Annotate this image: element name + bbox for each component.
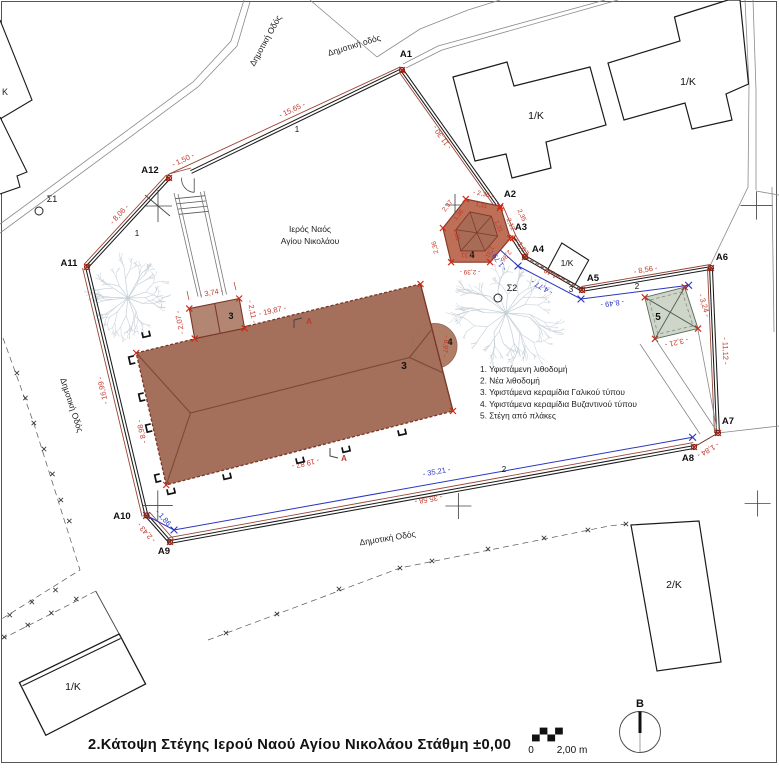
- svg-text:A6: A6: [716, 252, 728, 263]
- svg-text:Ιερός Ναός: Ιερός Ναός: [289, 224, 331, 234]
- svg-text:2: 2: [635, 282, 640, 291]
- svg-text:A10: A10: [113, 511, 130, 522]
- svg-text:5: 5: [655, 312, 661, 323]
- svg-text:A8: A8: [682, 453, 694, 464]
- svg-text:A: A: [341, 454, 347, 463]
- svg-text:1/Κ: 1/Κ: [65, 681, 81, 693]
- svg-text:A9: A9: [158, 546, 170, 557]
- svg-text:5. Στέγη από πλάκες: 5. Στέγη από πλάκες: [480, 410, 556, 420]
- svg-text:1/Κ: 1/Κ: [561, 258, 574, 268]
- svg-text:Αγίου Νικολάου: Αγίου Νικολάου: [281, 236, 340, 246]
- svg-text:A7: A7: [722, 416, 734, 427]
- svg-text:- 2,39 -: - 2,39 -: [460, 268, 481, 275]
- svg-text:A1: A1: [400, 49, 413, 60]
- svg-text:A5: A5: [587, 273, 600, 284]
- svg-text:3: 3: [228, 311, 233, 321]
- svg-text:3: 3: [569, 285, 574, 294]
- svg-text:2. Νέα λιθοδομή: 2. Νέα λιθοδομή: [480, 376, 540, 386]
- svg-text:1: 1: [295, 125, 300, 134]
- svg-text:A2: A2: [504, 189, 516, 200]
- svg-text:1/Κ: 1/Κ: [528, 110, 544, 122]
- svg-text:- 11,12 -: - 11,12 -: [721, 337, 731, 365]
- svg-text:Σ1: Σ1: [47, 194, 58, 204]
- svg-text:2,00 m: 2,00 m: [557, 745, 588, 756]
- svg-text:1,31: 1,31: [460, 251, 473, 258]
- svg-text:A4: A4: [532, 244, 545, 255]
- svg-text:A3: A3: [515, 222, 527, 233]
- svg-text:3: 3: [401, 361, 407, 372]
- svg-text:A11: A11: [61, 258, 79, 269]
- svg-text:0: 0: [528, 745, 534, 756]
- svg-text:3. Υφιστάμενα κεραμίδια Γαλικο: 3. Υφιστάμενα κεραμίδια Γαλικού τύπου: [480, 387, 625, 397]
- svg-text:1/Κ: 1/Κ: [680, 76, 696, 88]
- svg-text:2/Κ: 2/Κ: [666, 579, 682, 591]
- svg-text:4. Υφιστάμενα κεραμίδια Βυζαντ: 4. Υφιστάμενα κεραμίδια Βυζαντινού τύπου: [480, 399, 637, 409]
- svg-text:2.Κάτοψη Στέγης Ιερού Ναού Αγί: 2.Κάτοψη Στέγης Ιερού Ναού Αγίου Νικολάο…: [88, 737, 511, 753]
- svg-text:A12: A12: [141, 165, 158, 176]
- svg-text:Σ2: Σ2: [507, 283, 518, 293]
- svg-text:2: 2: [502, 465, 507, 474]
- svg-text:A: A: [306, 317, 312, 326]
- svg-text:1: 1: [135, 229, 140, 238]
- svg-text:Κ: Κ: [2, 87, 8, 97]
- svg-text:1. Υφιστάμενη λιθοδομή: 1. Υφιστάμενη λιθοδομή: [480, 364, 568, 374]
- svg-text:Β: Β: [636, 698, 644, 710]
